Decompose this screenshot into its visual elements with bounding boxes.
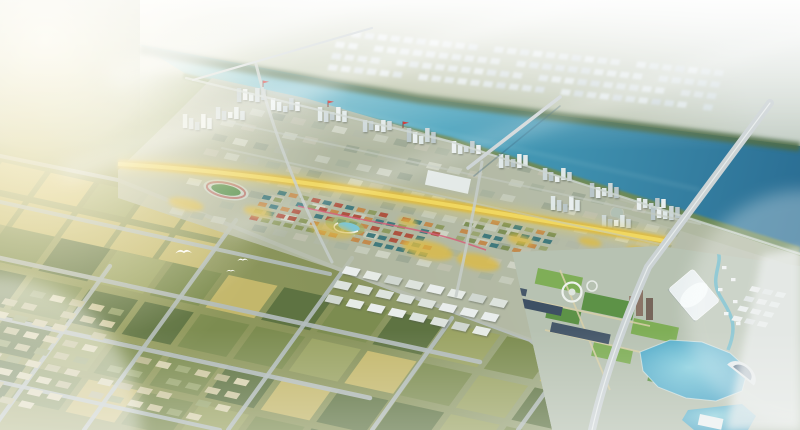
highrise-tower <box>590 183 595 197</box>
highrise-tower <box>608 183 613 197</box>
highrise-tower <box>557 200 562 211</box>
highrise-tower <box>575 200 580 211</box>
highrise-tower <box>637 198 642 210</box>
highrise-tower <box>517 154 522 168</box>
highrise-tower <box>563 204 568 212</box>
highrise-tower <box>661 199 666 208</box>
aerial-render <box>0 0 800 430</box>
highrise-tower <box>543 168 548 180</box>
scene-canvas <box>0 0 800 430</box>
sky-haze-band <box>0 0 800 150</box>
highrise-tower <box>569 196 574 210</box>
highrise-tower <box>675 207 680 218</box>
highrise-tower <box>551 196 556 210</box>
plaza-center <box>569 289 576 296</box>
